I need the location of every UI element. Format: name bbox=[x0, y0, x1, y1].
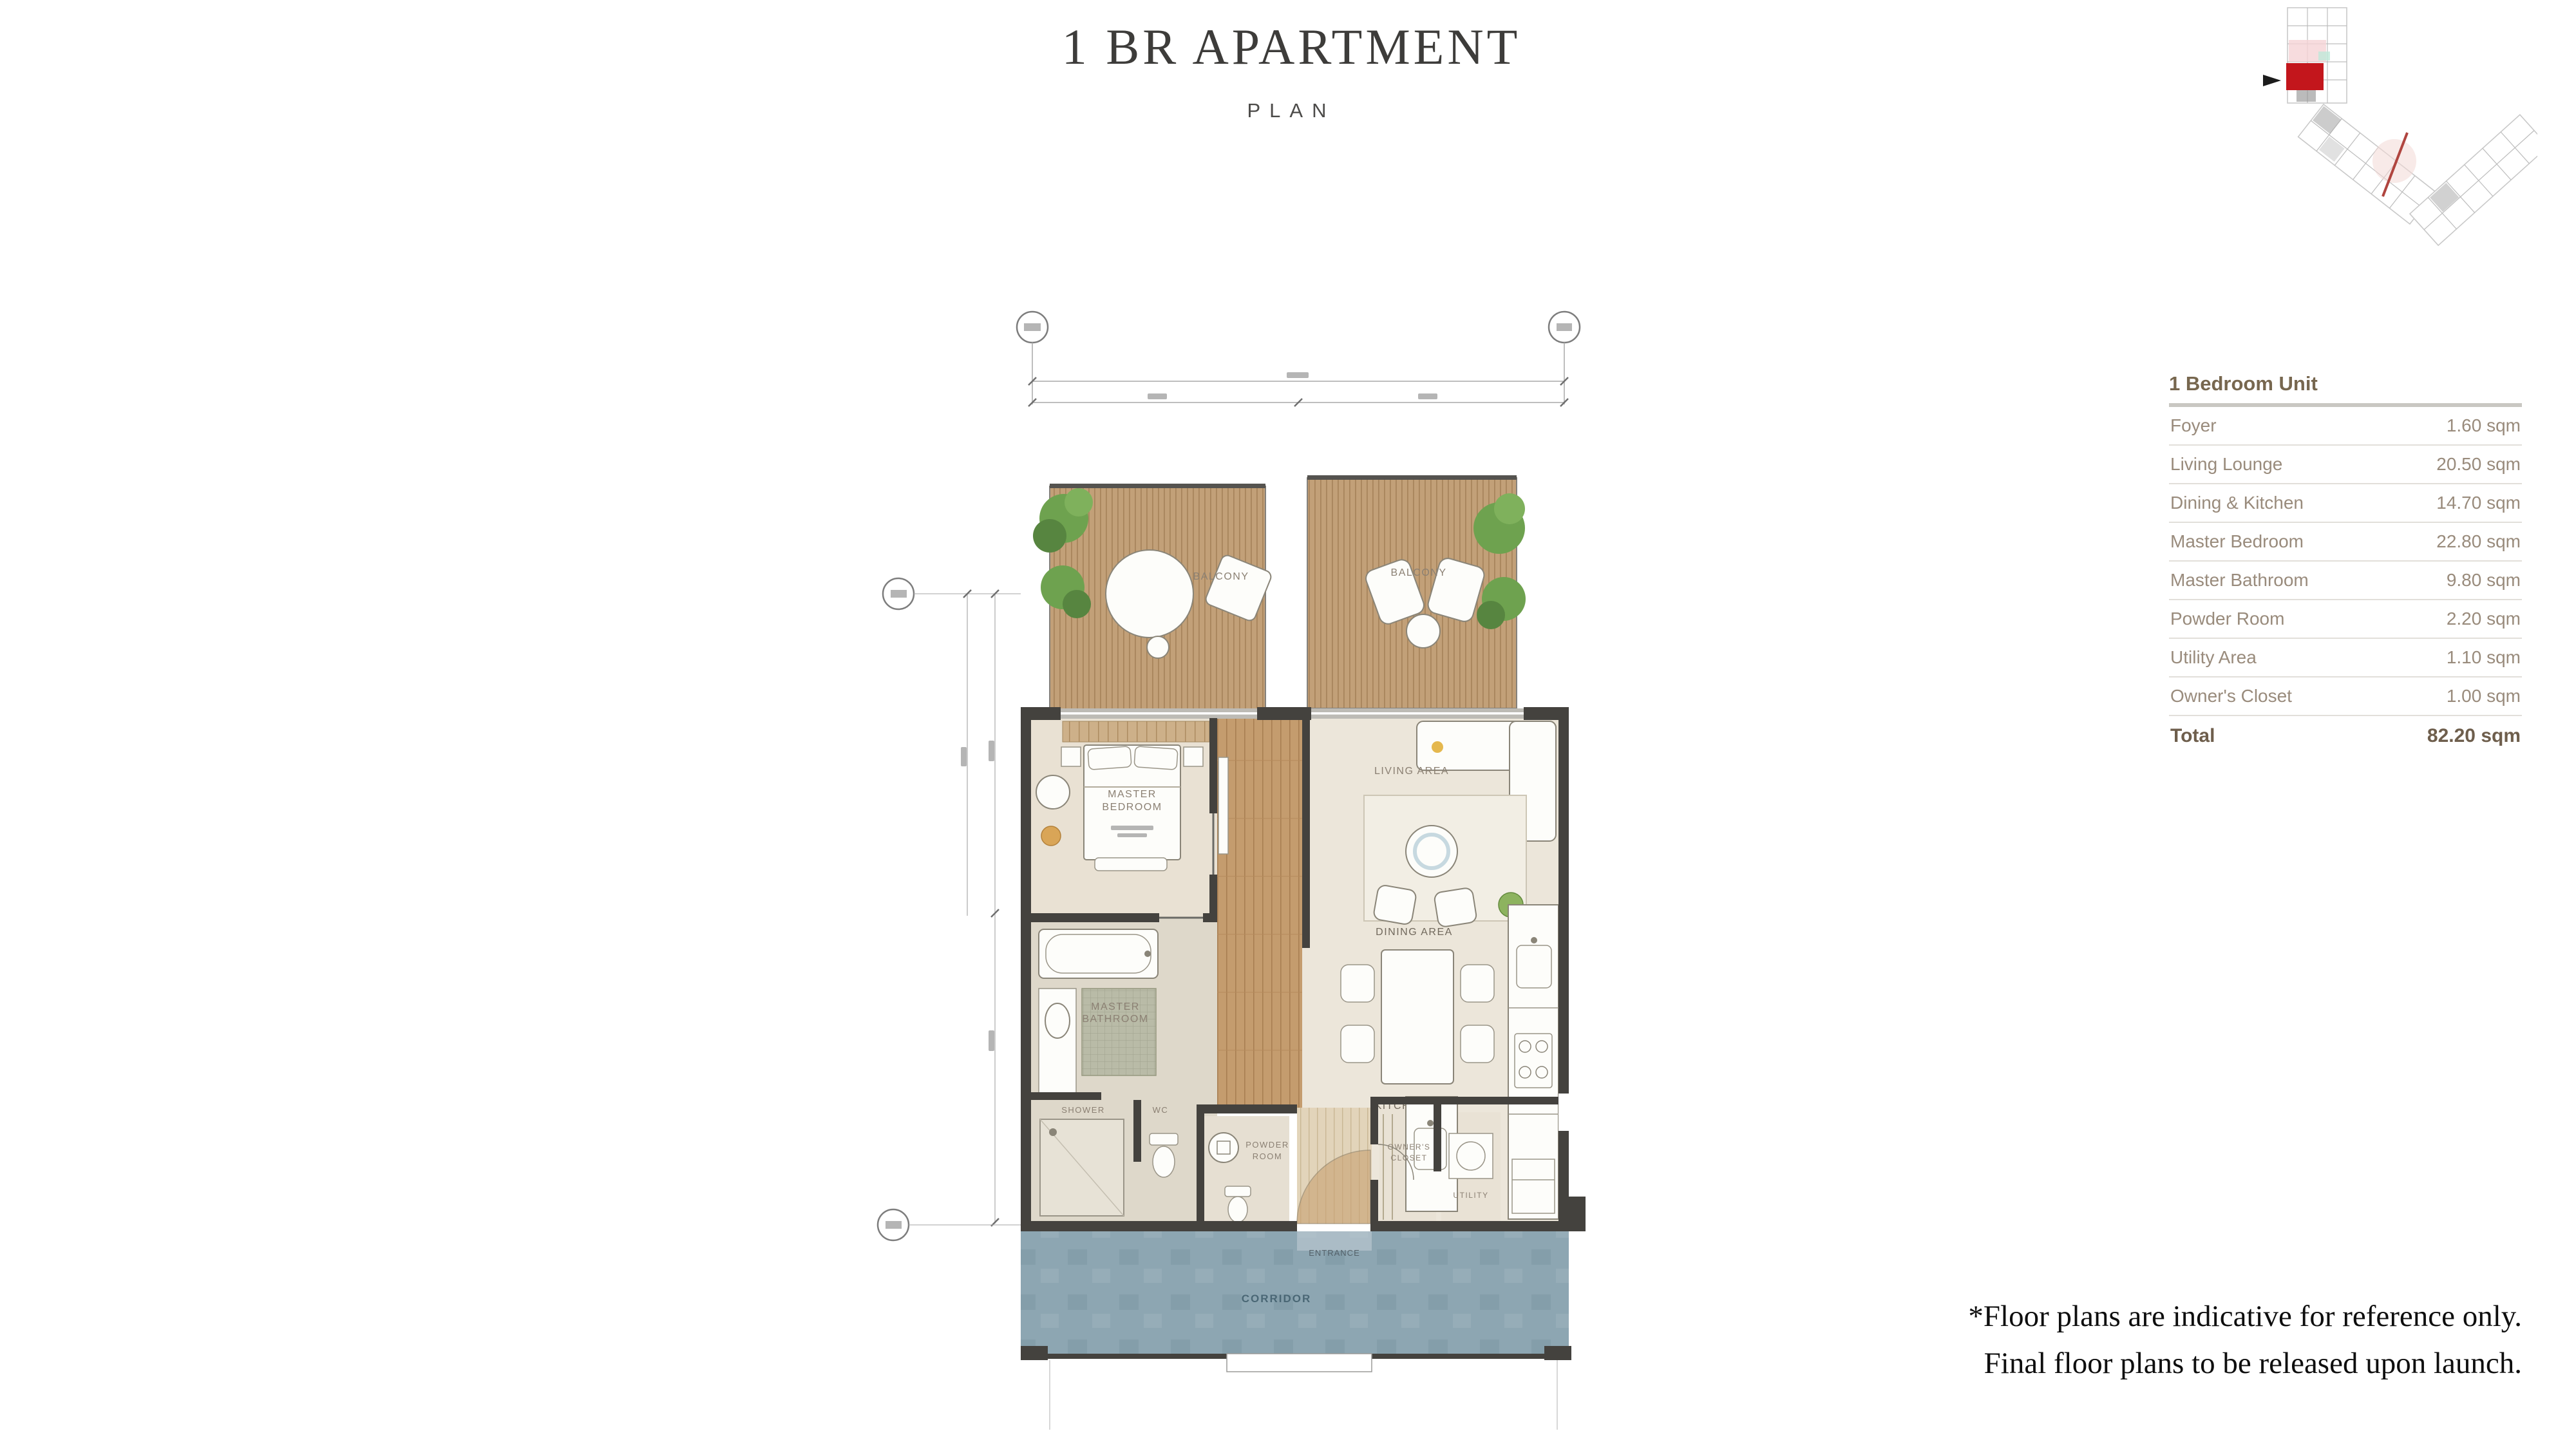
room-area: 9.80 sqm bbox=[2447, 570, 2521, 591]
master-bedroom-label-2: BEDROOM bbox=[1102, 802, 1162, 813]
header: 1 BR APARTMENT PLAN bbox=[966, 18, 1616, 122]
balcony-right-label: BALCONY bbox=[1391, 567, 1447, 578]
room-label: Dining & Kitchen bbox=[2170, 493, 2304, 513]
room-label: Living Lounge bbox=[2170, 454, 2282, 475]
dining-table bbox=[1381, 950, 1454, 1084]
page: 1 BR APARTMENT PLAN bbox=[0, 0, 2576, 1449]
utility-label: UTILITY bbox=[1453, 1191, 1488, 1200]
table-row: Powder Room 2.20 sqm bbox=[2169, 600, 2522, 639]
room-area: 14.70 sqm bbox=[2436, 493, 2521, 513]
corridor-zone: ENTRANCE CORRIDOR bbox=[1021, 1231, 1571, 1430]
room-label: Master Bathroom bbox=[2170, 570, 2309, 591]
wardrobe bbox=[1063, 721, 1209, 742]
table-row: Master Bathroom 9.80 sqm bbox=[2169, 562, 2522, 600]
page-subtitle: PLAN bbox=[966, 99, 1616, 122]
living-area-label: LIVING AREA bbox=[1374, 766, 1449, 777]
master-bedroom-label-1: MASTER bbox=[1108, 789, 1157, 800]
balcony-railing bbox=[1050, 484, 1265, 488]
nightstand bbox=[1184, 747, 1203, 766]
powder-sink bbox=[1209, 1133, 1238, 1162]
balcony-railing bbox=[1307, 475, 1517, 480]
table-total-row: Total 82.20 sqm bbox=[2169, 716, 2522, 756]
washer bbox=[1449, 1133, 1493, 1179]
disclaimer-line-1: *Floor plans are indicative for referenc… bbox=[1968, 1293, 2522, 1340]
room-area: 2.20 sqm bbox=[2447, 609, 2521, 629]
disclaimer: *Floor plans are indicative for referenc… bbox=[1968, 1293, 2522, 1387]
page-title: 1 BR APARTMENT bbox=[966, 18, 1616, 76]
balcony-chair bbox=[1147, 636, 1169, 658]
disclaimer-line-2: Final floor plans to be released upon la… bbox=[1968, 1340, 2522, 1387]
room-area: 1.60 sqm bbox=[2447, 415, 2521, 436]
grid-bubble-label bbox=[1024, 323, 1041, 331]
owners-closet-label-1: OWNER'S bbox=[1388, 1142, 1431, 1151]
room-label: Utility Area bbox=[2170, 647, 2257, 668]
dining-chair bbox=[1341, 1025, 1374, 1063]
bed-bench bbox=[1095, 858, 1167, 871]
tv-console bbox=[1218, 757, 1228, 854]
area-table: 1 Bedroom Unit Foyer 1.60 sqm Living Lou… bbox=[2169, 372, 2522, 756]
table-row: Owner's Closet 1.00 sqm bbox=[2169, 677, 2522, 716]
dining-chair bbox=[1461, 965, 1494, 1002]
accent-pillow bbox=[1432, 741, 1443, 753]
dining-area-label: DINING AREA bbox=[1376, 927, 1453, 938]
cooktop bbox=[1515, 1034, 1552, 1088]
right-wall-recess bbox=[1558, 1094, 1569, 1131]
keymap-tint-cell-2 bbox=[2318, 52, 2330, 61]
room-label: Powder Room bbox=[2170, 609, 2284, 629]
keymap-highlighted-unit bbox=[2286, 63, 2324, 90]
bathtub bbox=[1039, 929, 1158, 978]
balcony-right: BALCONY bbox=[1307, 475, 1526, 708]
kitchen-sink bbox=[1517, 945, 1551, 988]
bedroom-armchair bbox=[1036, 775, 1070, 809]
shower-label: SHOWER bbox=[1061, 1105, 1105, 1115]
area-table-title: 1 Bedroom Unit bbox=[2169, 372, 2522, 407]
keymap-center-tint bbox=[2372, 139, 2416, 183]
building-key-map bbox=[2241, 0, 2537, 258]
dining-chair bbox=[1461, 1025, 1494, 1063]
powder-room-label-2: ROOM bbox=[1253, 1151, 1282, 1161]
entrance-label: ENTRANCE bbox=[1309, 1248, 1360, 1258]
master-bathroom-label-1: MASTER bbox=[1091, 1001, 1140, 1012]
table-row: Foyer 1.60 sqm bbox=[2169, 407, 2522, 446]
table-row: Master Bedroom 22.80 sqm bbox=[2169, 523, 2522, 562]
room-label: Foyer bbox=[2170, 415, 2217, 436]
balcony-left: BALCONY bbox=[1033, 484, 1273, 712]
balcony-side-table bbox=[1406, 614, 1440, 648]
total-value: 82.20 sqm bbox=[2427, 725, 2521, 747]
armchair bbox=[1434, 887, 1477, 928]
corridor-wood-floor bbox=[1217, 718, 1302, 1108]
table-row: Utility Area 1.10 sqm bbox=[2169, 639, 2522, 677]
balcony-round-table bbox=[1106, 550, 1193, 638]
master-bathroom-label-2: BATHROOM bbox=[1082, 1014, 1148, 1025]
floor-plan: BALCONY BALCONY bbox=[857, 296, 1629, 1449]
total-label: Total bbox=[2170, 725, 2215, 747]
corridor-recess bbox=[1227, 1354, 1372, 1372]
shower bbox=[1040, 1119, 1124, 1216]
vanity bbox=[1039, 989, 1076, 1099]
keymap-right-wing-angled bbox=[2410, 115, 2537, 245]
dining-chair bbox=[1341, 965, 1374, 1002]
keymap-unit-arrow-icon bbox=[2263, 75, 2281, 86]
room-area: 1.10 sqm bbox=[2447, 647, 2521, 668]
armchair bbox=[1373, 884, 1417, 925]
powder-room-label-1: POWDER bbox=[1245, 1140, 1289, 1150]
room-area: 20.50 sqm bbox=[2436, 454, 2521, 475]
corridor-label: CORRIDOR bbox=[1242, 1293, 1312, 1305]
room-area: 22.80 sqm bbox=[2436, 531, 2521, 552]
room-label: Owner's Closet bbox=[2170, 686, 2292, 706]
room-area: 1.00 sqm bbox=[2447, 686, 2521, 706]
balcony-left-label: BALCONY bbox=[1193, 571, 1249, 582]
wc-label: WC bbox=[1153, 1105, 1169, 1115]
room-label: Master Bedroom bbox=[2170, 531, 2304, 552]
nightstand bbox=[1061, 747, 1081, 766]
table-row: Dining & Kitchen 14.70 sqm bbox=[2169, 484, 2522, 523]
owners-closet-label-2: CLOSET bbox=[1390, 1153, 1427, 1162]
pouf bbox=[1041, 826, 1061, 846]
table-row: Living Lounge 20.50 sqm bbox=[2169, 446, 2522, 484]
fridge bbox=[1512, 1159, 1555, 1213]
keymap-left-wing-stack bbox=[2263, 8, 2347, 103]
